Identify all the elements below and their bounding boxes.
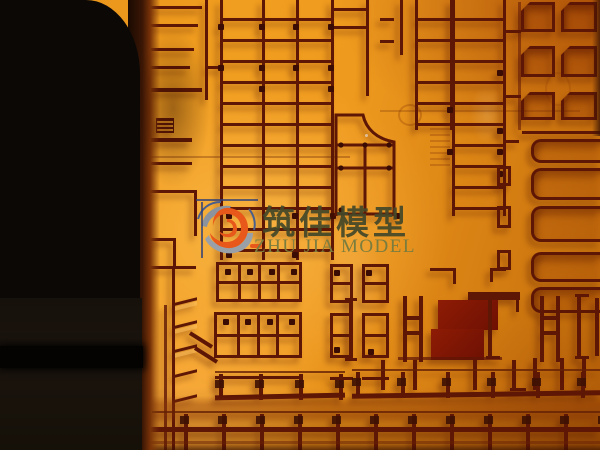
logo-blue-arc <box>249 209 255 230</box>
fence-caps <box>142 416 600 424</box>
object-cast-shadow <box>136 28 210 188</box>
right-edge-shadow <box>592 0 600 136</box>
watermark-english-text: ZHU JIA MODEL <box>254 236 416 258</box>
rail-thick <box>143 427 600 432</box>
logo-blue-rule <box>201 202 203 258</box>
bottom-vignette <box>143 444 600 450</box>
logo-blue-rule <box>196 199 258 201</box>
rail-thin <box>152 411 600 413</box>
dark-foreground-lower <box>0 298 142 450</box>
shadow-band-dark <box>0 346 143 368</box>
photo-backlit-model-sheet: 筑佳模型 ZHU JIA MODEL <box>0 0 600 450</box>
